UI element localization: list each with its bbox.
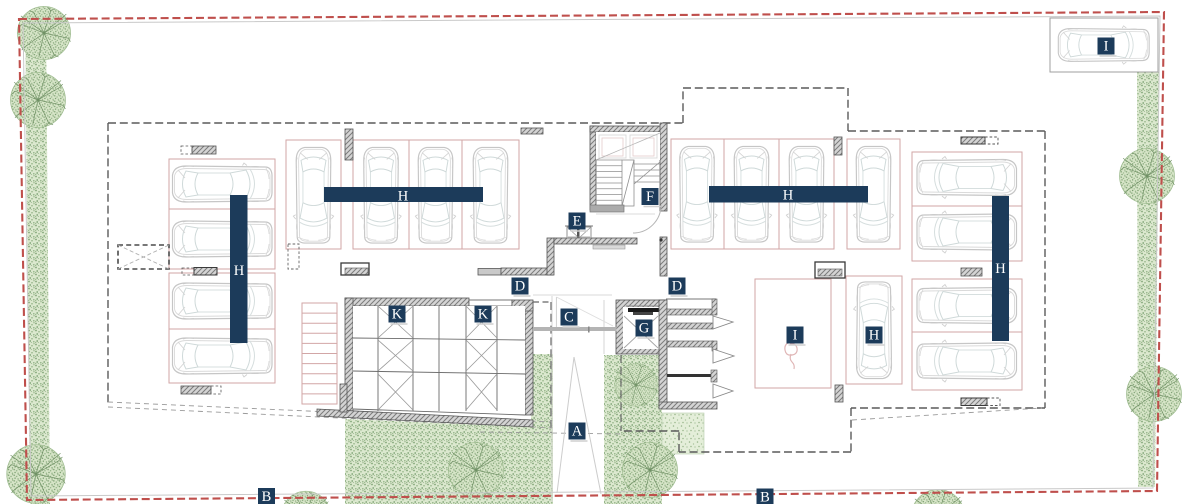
svg-text:B: B xyxy=(262,489,272,504)
svg-text:C: C xyxy=(564,310,574,326)
svg-text:H: H xyxy=(398,189,409,205)
svg-text:D: D xyxy=(515,279,525,295)
svg-text:E: E xyxy=(573,214,582,230)
svg-text:H: H xyxy=(234,263,245,279)
svg-text:H: H xyxy=(869,328,880,344)
svg-text:D: D xyxy=(672,279,682,295)
svg-text:G: G xyxy=(639,321,650,337)
svg-text:K: K xyxy=(478,307,489,323)
svg-text:A: A xyxy=(572,424,583,440)
svg-text:H: H xyxy=(995,261,1006,277)
svg-text:F: F xyxy=(646,189,654,205)
svg-text:I: I xyxy=(1104,39,1109,55)
svg-text:K: K xyxy=(392,307,403,323)
svg-text:B: B xyxy=(760,490,770,504)
svg-text:I: I xyxy=(793,328,798,344)
svg-text:H: H xyxy=(783,188,794,204)
